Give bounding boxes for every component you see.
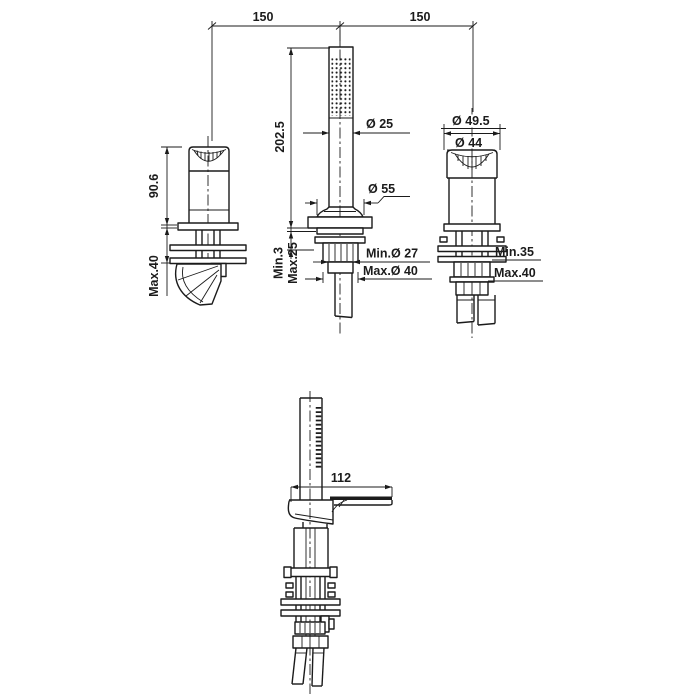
handshower-view bbox=[308, 30, 372, 336]
dim-label-span-left: 150 bbox=[253, 10, 274, 24]
dim-label-right-deck-min: Min.35 bbox=[495, 245, 534, 259]
technical-drawing-canvas: 150 150 bbox=[0, 0, 700, 700]
dim-label-handle-dia: Ø 25 bbox=[366, 117, 393, 131]
dim-label-knob-inner: Ø 44 bbox=[455, 136, 482, 150]
mixer-side-view bbox=[281, 391, 392, 694]
dim-label-rosette-dia: Ø 55 bbox=[368, 182, 395, 196]
dim-label-right-deck-max: Max.40 bbox=[494, 266, 536, 280]
faucet-dimension-drawing: 150 150 bbox=[0, 0, 700, 700]
dim-label-shower-height: 202.5 bbox=[273, 121, 287, 152]
dim-label-span-right: 150 bbox=[410, 10, 431, 24]
dim-label-valve-height: 90.6 bbox=[147, 174, 161, 198]
dim-label-deck-max: Max.25 bbox=[286, 242, 300, 284]
left-valve-view bbox=[170, 136, 246, 305]
dim-label-spout-reach: 112 bbox=[331, 471, 351, 485]
dim-label-hole-max: Max.Ø 40 bbox=[363, 264, 418, 278]
dim-label-knob-outer: Ø 49.5 bbox=[452, 114, 490, 128]
dim-label-deck-min: Min.3 bbox=[272, 247, 286, 279]
dim-label-valve-deck-max: Max.40 bbox=[147, 255, 161, 297]
dim-label-hole-min: Min.Ø 27 bbox=[366, 247, 418, 261]
